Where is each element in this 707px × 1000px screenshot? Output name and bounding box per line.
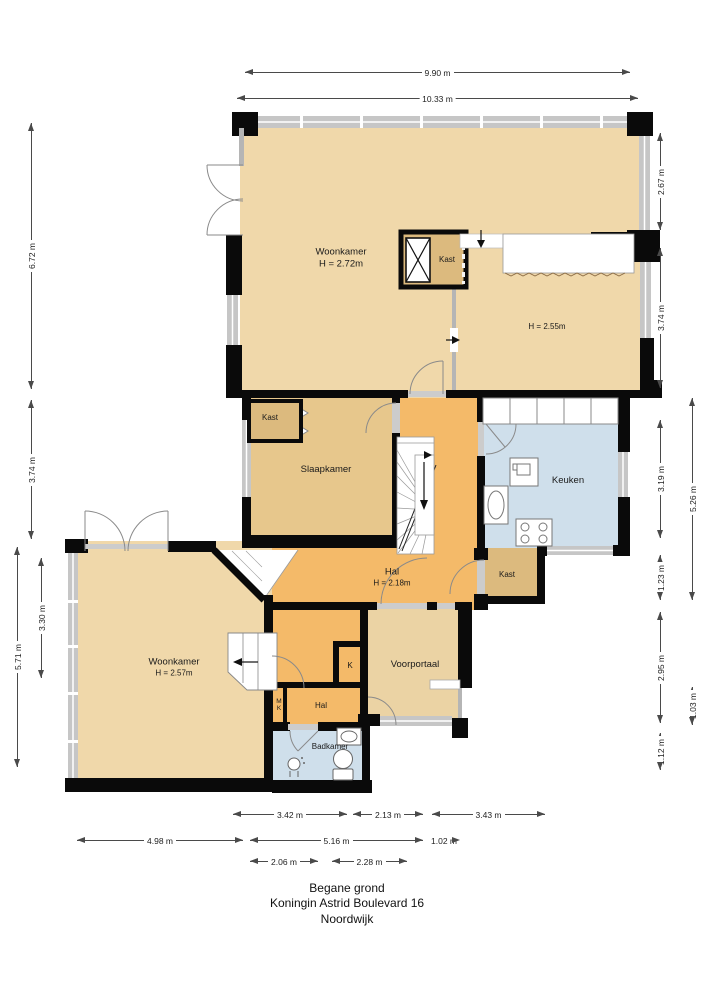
room-fills xyxy=(68,118,640,790)
dim-right-319: 3.19 m xyxy=(660,420,661,538)
plan-title-floor: Begane grond xyxy=(270,881,424,896)
dim-right-103: 1.03 m xyxy=(692,687,693,725)
dim-left-571: 5.71 m xyxy=(17,547,18,767)
floorplan-drawing xyxy=(0,0,707,1000)
dim-right-267: 2.67 m xyxy=(660,133,661,230)
dim-left-374: 3.74 m xyxy=(31,400,32,539)
dim-bottom-213: 2.13 m xyxy=(353,814,423,815)
dim-bottom-102: 1.02 m xyxy=(428,840,460,841)
kast-top-and-shaft xyxy=(401,232,466,287)
floorplan-canvas: Woonkamer H = 2.72m Kast H = 2.55m Slaap… xyxy=(0,0,707,1000)
staircase xyxy=(397,437,436,554)
wardrobe-rail xyxy=(503,234,634,273)
plan-title-city: Noordwijk xyxy=(270,912,424,927)
dim-right-526: 5.26 m xyxy=(692,398,693,600)
doormat xyxy=(430,680,460,689)
dim-right-374: 3.74 m xyxy=(660,248,661,388)
french-door-bottom-arc xyxy=(207,199,243,235)
kast-slaapkamer-box xyxy=(249,401,301,441)
plan-title-address: Koningin Astrid Boulevard 16 xyxy=(270,896,424,911)
toilet-icon xyxy=(334,750,353,769)
dim-top-990: 9.90 m xyxy=(245,72,630,73)
dim-top-1033: 10.33 m xyxy=(237,98,638,99)
dim-bottom-228: 2.28 m xyxy=(332,861,407,862)
dim-right-123: 1.23 m xyxy=(660,555,661,600)
plan-title: Begane grond Koningin Astrid Boulevard 1… xyxy=(270,881,424,927)
shower-icon xyxy=(288,758,300,770)
dim-right-295: 2.95 m xyxy=(660,612,661,723)
french-door-top-arc xyxy=(207,165,243,201)
dim-bottom-342: 3.42 m xyxy=(233,814,347,815)
dim-bottom-498: 4.98 m xyxy=(77,840,243,841)
dim-left-672: 6.72 m xyxy=(31,123,32,389)
dim-bottom-206: 2.06 m xyxy=(250,861,318,862)
sink-unit-icon xyxy=(510,458,538,486)
dim-left-330: 3.30 m xyxy=(41,558,42,678)
dim-bottom-516: 5.16 m xyxy=(250,840,423,841)
dim-right-112: 1.12 m xyxy=(660,733,661,770)
dim-bottom-343: 3.43 m xyxy=(432,814,545,815)
stove-icon xyxy=(516,519,552,546)
